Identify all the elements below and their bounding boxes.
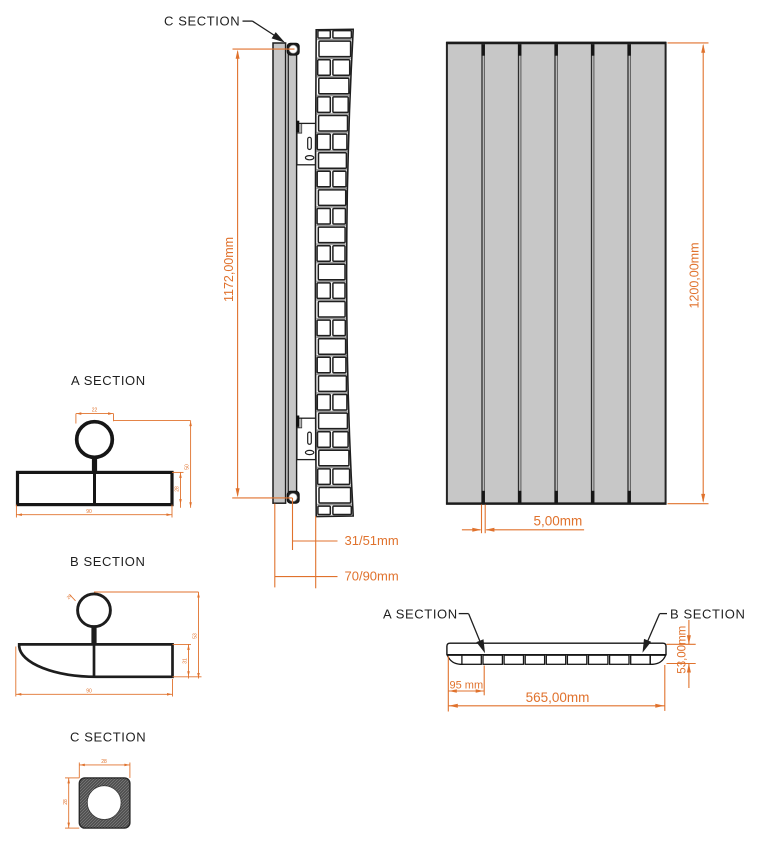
svg-text:5,00mm: 5,00mm — [534, 513, 583, 528]
svg-text:28: 28 — [101, 759, 107, 765]
svg-text:1200,00mm: 1200,00mm — [688, 242, 702, 308]
svg-text:31/51mm: 31/51mm — [345, 533, 399, 548]
svg-text:B SECTION: B SECTION — [670, 607, 745, 622]
svg-text:B SECTION: B SECTION — [70, 554, 145, 569]
svg-text:C SECTION: C SECTION — [164, 14, 240, 29]
svg-text:565,00mm: 565,00mm — [526, 690, 590, 705]
svg-text:50: 50 — [185, 464, 191, 470]
svg-text:A SECTION: A SECTION — [383, 607, 458, 622]
svg-text:28: 28 — [175, 486, 181, 492]
svg-text:95 mm: 95 mm — [450, 680, 484, 692]
svg-text:A SECTION: A SECTION — [71, 373, 146, 388]
svg-text:1172,00mm: 1172,00mm — [222, 237, 236, 302]
svg-text:C SECTION: C SECTION — [70, 730, 146, 745]
svg-text:90: 90 — [86, 689, 92, 695]
svg-text:22: 22 — [92, 408, 98, 414]
svg-text:28: 28 — [63, 799, 69, 805]
svg-text:90: 90 — [86, 509, 92, 515]
svg-text:31: 31 — [183, 658, 189, 664]
svg-text:53: 53 — [193, 633, 199, 639]
svg-text:70/90mm: 70/90mm — [345, 568, 399, 583]
svg-text:53,00mm: 53,00mm — [677, 626, 689, 674]
